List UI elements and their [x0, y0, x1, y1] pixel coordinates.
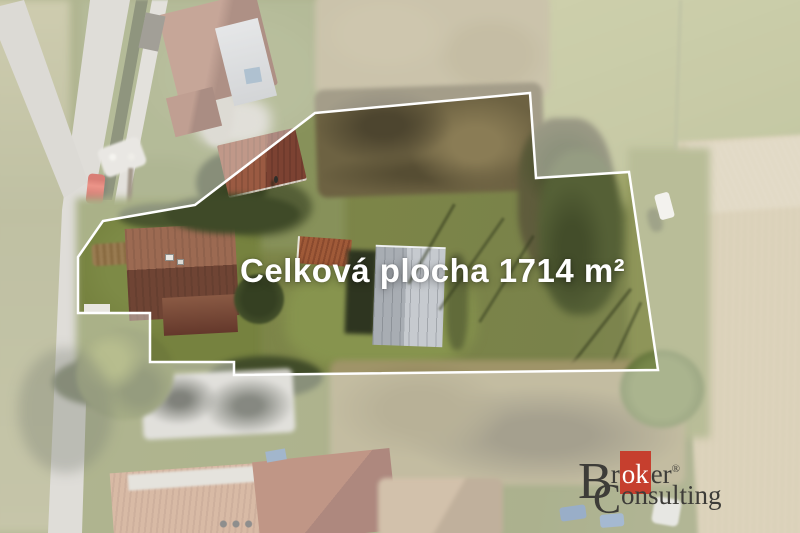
registered-mark: ®	[672, 463, 680, 475]
logo-text: onsulting	[621, 480, 722, 510]
area-label: Celková plocha 1714 m²	[240, 252, 640, 290]
aerial-photo: Celková plocha 1714 m² Broker® Consultin…	[0, 0, 800, 533]
logo-line-consulting: Consulting	[593, 479, 722, 521]
broker-consulting-logo: Broker® Consulting	[578, 452, 763, 522]
logo-initial-c: C	[593, 477, 621, 523]
